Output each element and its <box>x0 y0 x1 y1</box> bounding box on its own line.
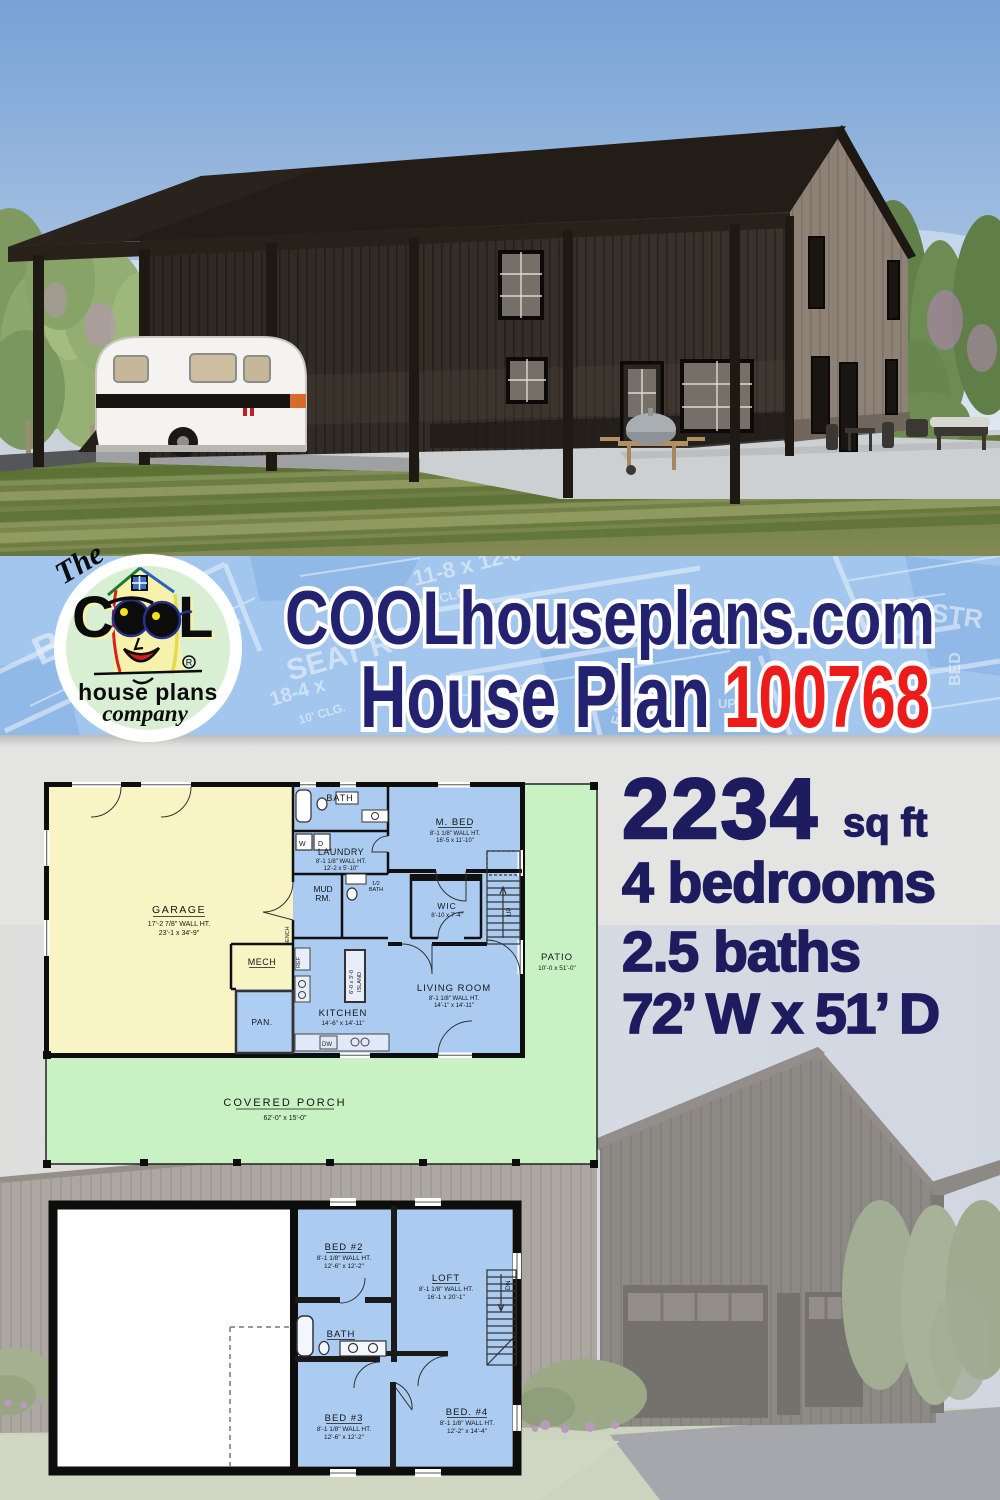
svg-text:8'-1 1/8" WALL HT.: 8'-1 1/8" WALL HT. <box>429 996 480 1002</box>
svg-text:COVERED PORCH: COVERED PORCH <box>223 1097 346 1109</box>
svg-text:12'-2 x 5'-10": 12'-2 x 5'-10" <box>324 866 359 872</box>
svg-text:BENCH: BENCH <box>285 926 291 945</box>
svg-text:BATH: BATH <box>369 887 383 893</box>
svg-text:12'-6" x 12'-2": 12'-6" x 12'-2" <box>324 1434 365 1441</box>
svg-text:23'-1 x 34'-9": 23'-1 x 34'-9" <box>159 930 200 937</box>
svg-text:REF: REF <box>296 956 302 968</box>
svg-text:company: company <box>102 701 188 726</box>
svg-text:W: W <box>299 841 306 848</box>
svg-text:BATH: BATH <box>327 1329 356 1340</box>
svg-text:2234: 2234 <box>622 762 819 857</box>
svg-text:8'-10 x 7'-4": 8'-10 x 7'-4" <box>431 913 462 919</box>
svg-text:R: R <box>186 658 193 668</box>
svg-text:8'-1 1/8" WALL HT.: 8'-1 1/8" WALL HT. <box>440 1420 495 1427</box>
svg-text:DW: DW <box>322 1042 332 1048</box>
svg-text:C: C <box>72 585 114 650</box>
svg-text:House Plan: House Plan <box>360 647 710 735</box>
svg-text:BED #2: BED #2 <box>325 1242 364 1253</box>
svg-text:14'-1" x 14'-11": 14'-1" x 14'-11" <box>434 1003 474 1009</box>
svg-text:4 bedrooms: 4 bedrooms <box>622 851 935 915</box>
svg-text:16'-1 x 20'-1": 16'-1 x 20'-1" <box>427 1294 465 1301</box>
svg-text:100768: 100768 <box>724 647 930 735</box>
svg-text:PAN.: PAN. <box>251 1017 272 1027</box>
svg-text:8'-1 1/8" WALL HT.: 8'-1 1/8" WALL HT. <box>317 1255 372 1262</box>
svg-text:8'-1 1/8" WALL HT.: 8'-1 1/8" WALL HT. <box>317 1426 372 1433</box>
svg-text:LAUNDRY: LAUNDRY <box>318 847 364 857</box>
svg-text:PATIO: PATIO <box>541 952 573 963</box>
svg-text:10'-0 x 51'-0": 10'-0 x 51'-0" <box>538 965 576 972</box>
svg-text:62'-0" x 15'-0": 62'-0" x 15'-0" <box>263 1115 307 1122</box>
svg-text:8'-1 1/8" WALL HT.: 8'-1 1/8" WALL HT. <box>419 1286 474 1293</box>
svg-text:6'-0 x 3'-0: 6'-0 x 3'-0 <box>349 970 355 994</box>
svg-text:BED. #4: BED. #4 <box>446 1407 488 1418</box>
svg-text:KITCHEN: KITCHEN <box>319 1008 368 1019</box>
svg-text:16'-5 x 11'-10": 16'-5 x 11'-10" <box>436 838 474 844</box>
svg-text:BATH: BATH <box>326 793 353 803</box>
svg-text:RM.: RM. <box>315 893 331 903</box>
svg-text:M. BED: M. BED <box>436 817 475 828</box>
svg-text:BED: BED <box>947 652 964 686</box>
svg-text:DN: DN <box>505 1280 512 1290</box>
svg-text:WIC: WIC <box>437 901 457 911</box>
svg-text:12'-2" x 14'-4": 12'-2" x 14'-4" <box>447 1428 488 1435</box>
svg-text:BED #3: BED #3 <box>325 1413 364 1424</box>
svg-text:8'-1 1/8" WALL HT.: 8'-1 1/8" WALL HT. <box>316 859 367 865</box>
svg-text:MECH: MECH <box>248 957 277 967</box>
svg-text:sq ft: sq ft <box>843 801 927 845</box>
svg-text:72’ W x 51’ D: 72’ W x 51’ D <box>622 982 938 1046</box>
svg-text:8'-1 1/8" WALL HT.: 8'-1 1/8" WALL HT. <box>430 831 481 837</box>
svg-text:17'-2 7/8" WALL HT.: 17'-2 7/8" WALL HT. <box>148 921 210 928</box>
svg-text:LOFT: LOFT <box>432 1273 460 1284</box>
svg-text:UP: UP <box>507 908 513 916</box>
svg-text:GARAGE: GARAGE <box>152 904 206 916</box>
svg-text:LIVING ROOM: LIVING ROOM <box>417 983 491 994</box>
svg-text:12'-6" x 12'-2": 12'-6" x 12'-2" <box>324 1263 365 1270</box>
svg-text:2.5 baths: 2.5 baths <box>622 920 860 984</box>
svg-text:14'-6" x 14'-11": 14'-6" x 14'-11" <box>321 1020 365 1027</box>
svg-text:ISLAND: ISLAND <box>357 972 363 992</box>
svg-text:L: L <box>178 585 213 650</box>
